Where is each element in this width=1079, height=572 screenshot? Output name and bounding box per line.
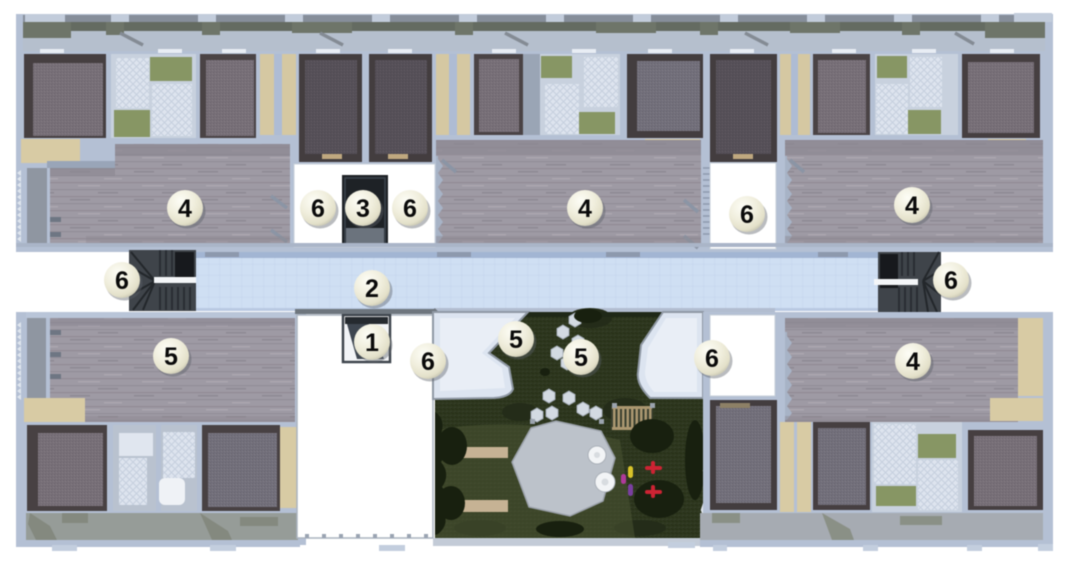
- svg-text:5: 5: [574, 344, 588, 372]
- svg-text:5: 5: [509, 326, 523, 354]
- svg-text:4: 4: [578, 195, 592, 223]
- svg-text:1: 1: [365, 329, 379, 357]
- svg-text:6: 6: [421, 348, 435, 376]
- svg-text:4: 4: [178, 195, 192, 223]
- svg-text:6: 6: [740, 201, 754, 229]
- svg-text:3: 3: [356, 195, 370, 223]
- svg-text:6: 6: [115, 267, 129, 295]
- svg-text:6: 6: [403, 195, 417, 223]
- svg-text:4: 4: [905, 192, 919, 220]
- svg-text:4: 4: [906, 348, 920, 376]
- svg-text:6: 6: [944, 267, 958, 295]
- svg-text:2: 2: [365, 275, 379, 303]
- svg-text:6: 6: [311, 195, 325, 223]
- svg-text:5: 5: [164, 343, 178, 371]
- svg-text:6: 6: [705, 345, 719, 373]
